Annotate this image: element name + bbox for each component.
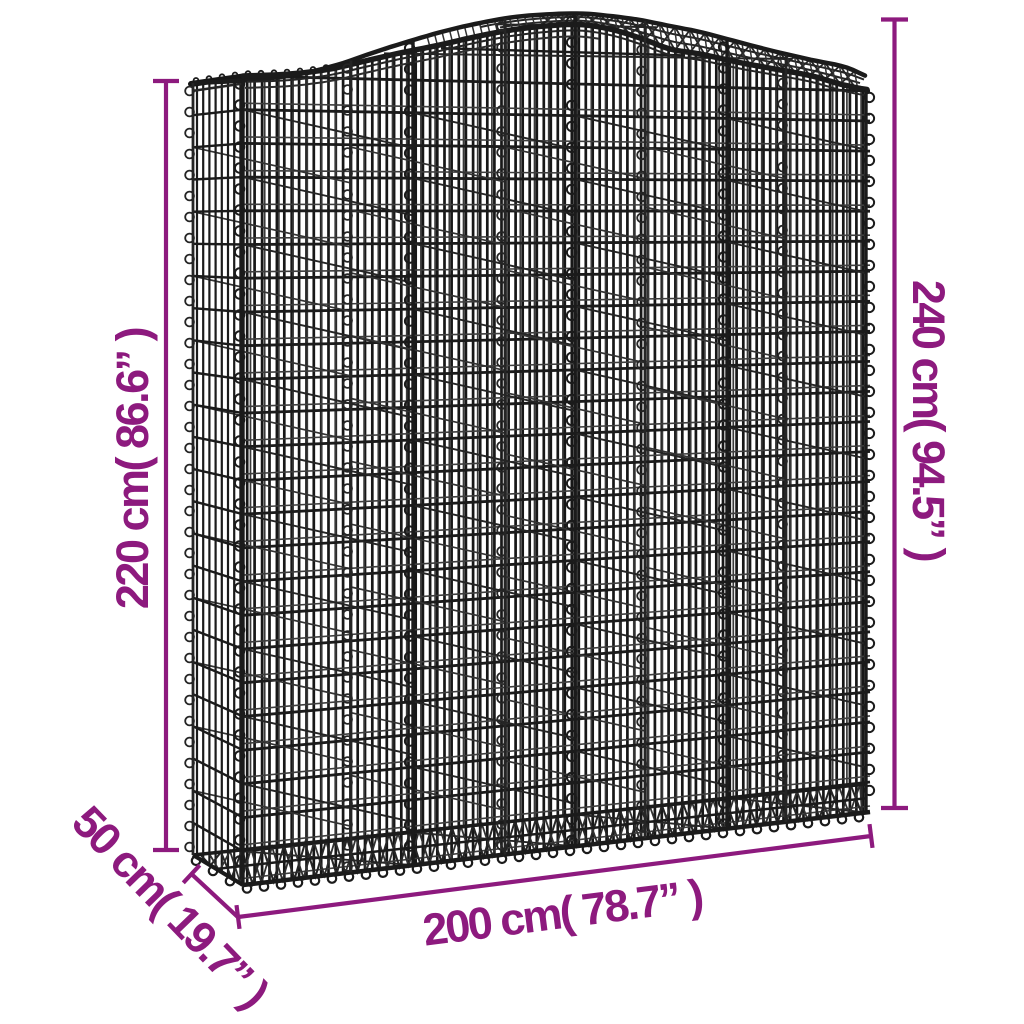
svg-text:200 cm( 78.7” ): 200 cm( 78.7” ): [420, 869, 705, 955]
svg-text:240 cm( 94.5” ): 240 cm( 94.5” ): [903, 280, 954, 561]
svg-text:220 cm( 86.6” ): 220 cm( 86.6” ): [107, 328, 158, 609]
